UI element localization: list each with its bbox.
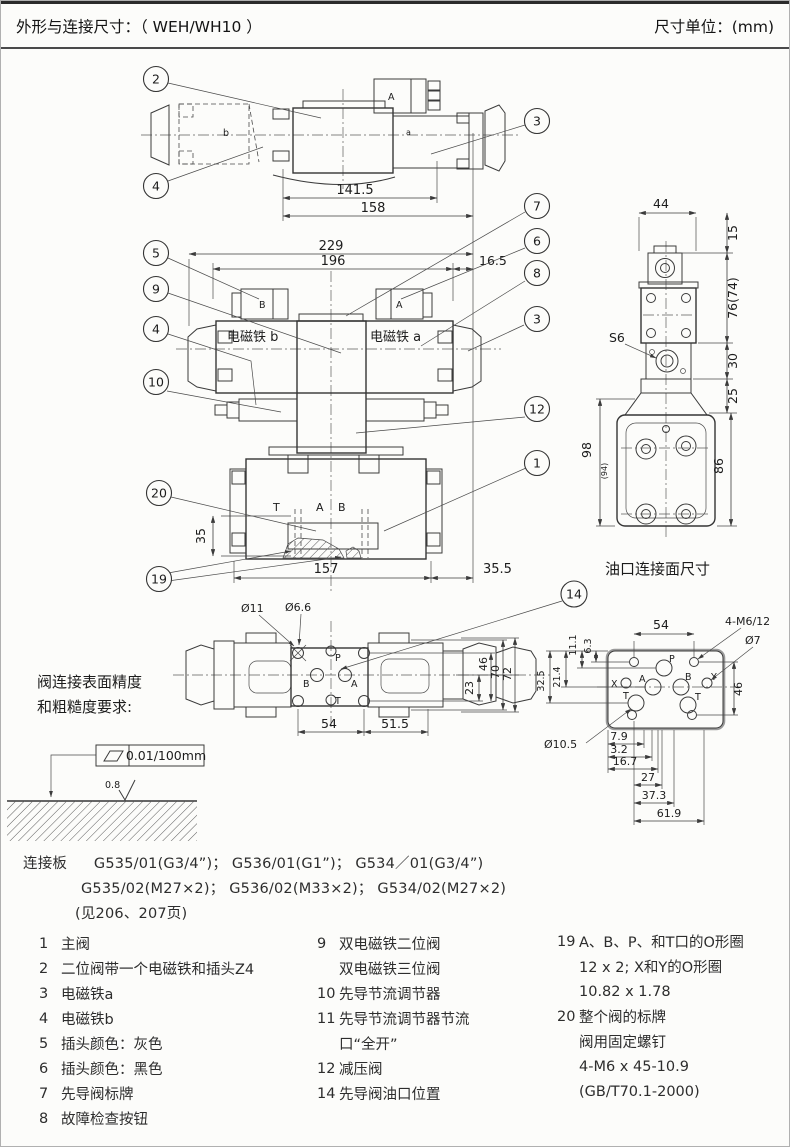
- front-view-drawing: 229 196 16.5 B A 电磁铁 b 电磁铁 a: [176, 239, 512, 591]
- svg-text:T: T: [334, 696, 341, 707]
- svg-text:6.3: 6.3: [583, 638, 594, 653]
- svg-text:46: 46: [732, 682, 745, 696]
- svg-text:0.8: 0.8: [105, 780, 120, 791]
- parts-item: 3电磁铁a: [39, 981, 254, 1006]
- svg-text:3: 3: [533, 114, 541, 129]
- callout-2: 2: [144, 67, 169, 92]
- svg-text:32.5: 32.5: [536, 670, 547, 691]
- callout-14: 14: [561, 581, 587, 607]
- svg-text:229: 229: [319, 239, 344, 254]
- svg-text:54: 54: [653, 617, 669, 632]
- svg-text:Y: Y: [710, 672, 717, 683]
- svg-text:T: T: [694, 692, 701, 703]
- svg-text:30: 30: [725, 353, 740, 369]
- svg-text:35: 35: [193, 528, 208, 544]
- svg-text:A: A: [388, 92, 395, 103]
- callout-19: 19: [147, 567, 172, 592]
- parts-item: 11先导节流调节器节流: [317, 1006, 470, 1031]
- callout-20: 20: [147, 481, 172, 506]
- svg-text:98: 98: [579, 442, 594, 458]
- side-view-drawing: 44 S6: [579, 196, 740, 578]
- svg-text:19: 19: [151, 572, 167, 587]
- svg-text:A: A: [396, 300, 403, 311]
- svg-text:86: 86: [711, 458, 726, 474]
- callout-4b: 4: [144, 317, 169, 342]
- svg-text:T: T: [622, 691, 629, 702]
- callout-3: 3: [525, 109, 550, 134]
- svg-text:25: 25: [725, 388, 740, 404]
- svg-text:16.5: 16.5: [479, 253, 507, 268]
- svg-text:X: X: [611, 679, 618, 690]
- svg-text:158: 158: [361, 201, 386, 216]
- plate-note-line3: (见206、207页): [75, 902, 187, 923]
- svg-text:10: 10: [148, 375, 164, 390]
- parts-item: 4电磁铁b: [39, 1006, 254, 1031]
- surface-finish-note: 阀连接表面精度 和粗糙度要求: 0.01/100mm 0.8: [7, 673, 206, 841]
- svg-text:27: 27: [641, 771, 655, 784]
- svg-text:阀连接表面精度: 阀连接表面精度: [37, 673, 142, 691]
- side-view-caption: 油口连接面尺寸: [605, 560, 710, 578]
- svg-text:37.3: 37.3: [642, 789, 667, 802]
- svg-text:72: 72: [501, 667, 514, 681]
- svg-text:9: 9: [152, 282, 160, 297]
- parts-list-column-1: 1主阀 2二位阀带一个电磁铁和插头Z4 3电磁铁a 4电磁铁b 5插头颜色：灰色…: [39, 931, 254, 1131]
- svg-text:4: 4: [152, 179, 160, 194]
- technical-drawing: b A a 141.5: [1, 1, 790, 846]
- parts-item: 10先导节流调节器: [317, 981, 470, 1006]
- svg-text:20: 20: [151, 486, 167, 501]
- callout-12: 12: [525, 397, 550, 422]
- callout-9: 9: [144, 277, 169, 302]
- plate-note-line1: 连接板 G535/01(G3/4”)； G536/01(G1”)； G534／0…: [23, 852, 483, 873]
- callout-5: 5: [144, 241, 169, 266]
- svg-text:A: A: [316, 501, 324, 514]
- catalog-page: 外形与连接尺寸：（ WEH/WH10 ） 尺寸单位：(mm) b: [0, 0, 790, 1147]
- svg-text:电磁铁 b: 电磁铁 b: [227, 330, 278, 345]
- parts-item: (GB/T70.1-2000): [557, 1079, 744, 1104]
- svg-text:51.5: 51.5: [381, 716, 409, 731]
- parts-item: 20整个阀的标牌: [557, 1004, 744, 1029]
- svg-text:5: 5: [152, 246, 160, 261]
- plate-note-label: 连接板: [23, 856, 67, 872]
- callout-7: 7: [525, 194, 550, 219]
- svg-text:141.5: 141.5: [336, 183, 373, 198]
- svg-text:B: B: [259, 300, 266, 311]
- svg-text:1: 1: [533, 456, 541, 471]
- svg-text:Ø6.6: Ø6.6: [285, 601, 311, 614]
- parts-item: 9双电磁铁二位阀: [317, 931, 470, 956]
- parts-item: 7先导阀标牌: [39, 1081, 254, 1106]
- parts-item: 4-M6 x 45-10.9: [557, 1054, 744, 1079]
- callout-8: 8: [525, 261, 550, 286]
- svg-text:Ø10.5: Ø10.5: [544, 738, 577, 751]
- svg-text:A: A: [639, 674, 646, 685]
- svg-text:44: 44: [653, 196, 669, 211]
- svg-text:8: 8: [533, 266, 541, 281]
- parts-item: 14先导阀油口位置: [317, 1081, 470, 1106]
- svg-text:a: a: [406, 128, 411, 137]
- svg-text:54: 54: [321, 716, 337, 731]
- parts-item: 8故障检查按钮: [39, 1106, 254, 1131]
- parts-item: 1主阀: [39, 931, 254, 956]
- svg-text:0.01/100mm: 0.01/100mm: [126, 748, 206, 763]
- svg-text:15: 15: [725, 225, 740, 241]
- svg-text:196: 196: [321, 254, 346, 269]
- parts-list-column-3: 19A、B、P、和T口的O形圈 12 x 2; X和Y的O形圈 10.82 x …: [557, 929, 744, 1104]
- parts-item: 2二位阀带一个电磁铁和插头Z4: [39, 956, 254, 981]
- callout-leaders: [167, 83, 562, 669]
- svg-text:4: 4: [152, 322, 160, 337]
- parts-item: 12 x 2; X和Y的O形圈: [557, 954, 744, 979]
- parts-item: 5插头颜色：灰色: [39, 1031, 254, 1056]
- svg-text:7.9: 7.9: [610, 730, 628, 743]
- svg-text:76(74): 76(74): [725, 277, 740, 319]
- svg-text:6: 6: [533, 234, 541, 249]
- svg-text:21.4: 21.4: [552, 666, 563, 687]
- svg-text:14: 14: [566, 587, 582, 602]
- svg-text:B: B: [303, 679, 310, 690]
- svg-text:2: 2: [152, 72, 160, 87]
- svg-text:23: 23: [463, 681, 476, 695]
- callout-4: 4: [144, 174, 169, 199]
- svg-text:b: b: [223, 128, 229, 139]
- svg-text:(94): (94): [600, 463, 609, 479]
- svg-text:Ø7: Ø7: [745, 634, 761, 647]
- plate-note-line2: G535/02(M27×2)； G536/02(M33×2)； G534/02(…: [81, 877, 506, 898]
- callout-3b: 3: [525, 307, 550, 332]
- parts-item: 口“全开”: [317, 1031, 470, 1056]
- parts-list-column-2: 9双电磁铁二位阀 双电磁铁三位阀 10先导节流调节器 11先导节流调节器节流 口…: [317, 931, 470, 1106]
- svg-text:A: A: [351, 679, 358, 690]
- svg-text:P: P: [669, 654, 675, 665]
- svg-text:Ø11: Ø11: [241, 602, 264, 615]
- svg-text:7: 7: [533, 199, 541, 214]
- callout-6: 6: [525, 229, 550, 254]
- svg-text:和粗糙度要求:: 和粗糙度要求:: [37, 698, 132, 716]
- svg-text:35.5: 35.5: [483, 562, 512, 577]
- svg-text:4-M6/12: 4-M6/12: [725, 615, 770, 628]
- parts-item: 12减压阀: [317, 1056, 470, 1081]
- svg-text:61.9: 61.9: [657, 807, 682, 820]
- parts-item: 19A、B、P、和T口的O形圈: [557, 929, 744, 954]
- callout-10: 10: [144, 370, 169, 395]
- svg-text:12: 12: [529, 402, 545, 417]
- svg-text:157: 157: [314, 562, 339, 577]
- parts-item: 10.82 x 1.78: [557, 979, 744, 1004]
- svg-text:16.7: 16.7: [613, 755, 638, 768]
- svg-text:电磁铁 a: 电磁铁 a: [370, 330, 421, 345]
- parts-item: 双电磁铁三位阀: [317, 956, 470, 981]
- callout-1: 1: [525, 451, 550, 476]
- svg-text:B: B: [338, 501, 346, 514]
- svg-text:3: 3: [533, 312, 541, 327]
- svg-text:T: T: [272, 501, 280, 514]
- svg-text:11.1: 11.1: [568, 634, 579, 655]
- parts-item: 6插头颜色：黑色: [39, 1056, 254, 1081]
- parts-item: 阀用固定螺钉: [557, 1029, 744, 1054]
- svg-text:S6: S6: [609, 330, 625, 345]
- svg-text:P: P: [335, 653, 341, 664]
- port-face-drawing: P X A B Y T T 54 4-M6/12 Ø7 6.3 11.1: [536, 615, 770, 825]
- svg-text:B: B: [685, 672, 692, 683]
